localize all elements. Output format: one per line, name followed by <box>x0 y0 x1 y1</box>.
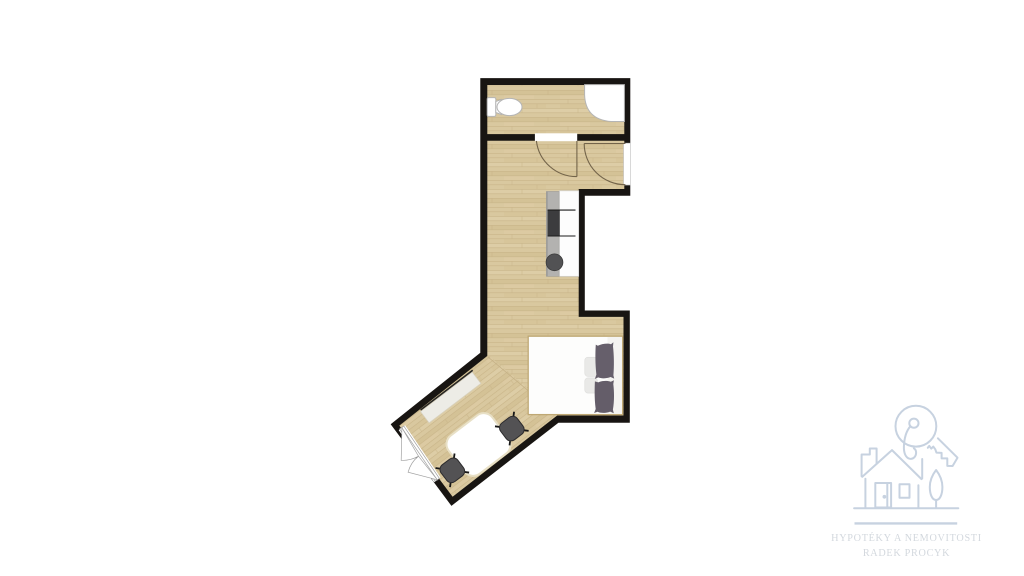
svg-text:RADEK PROCYK: RADEK PROCYK <box>863 548 950 559</box>
svg-text:HYPOTÉKY A NEMOVITOSTI: HYPOTÉKY A NEMOVITOSTI <box>831 532 982 544</box>
